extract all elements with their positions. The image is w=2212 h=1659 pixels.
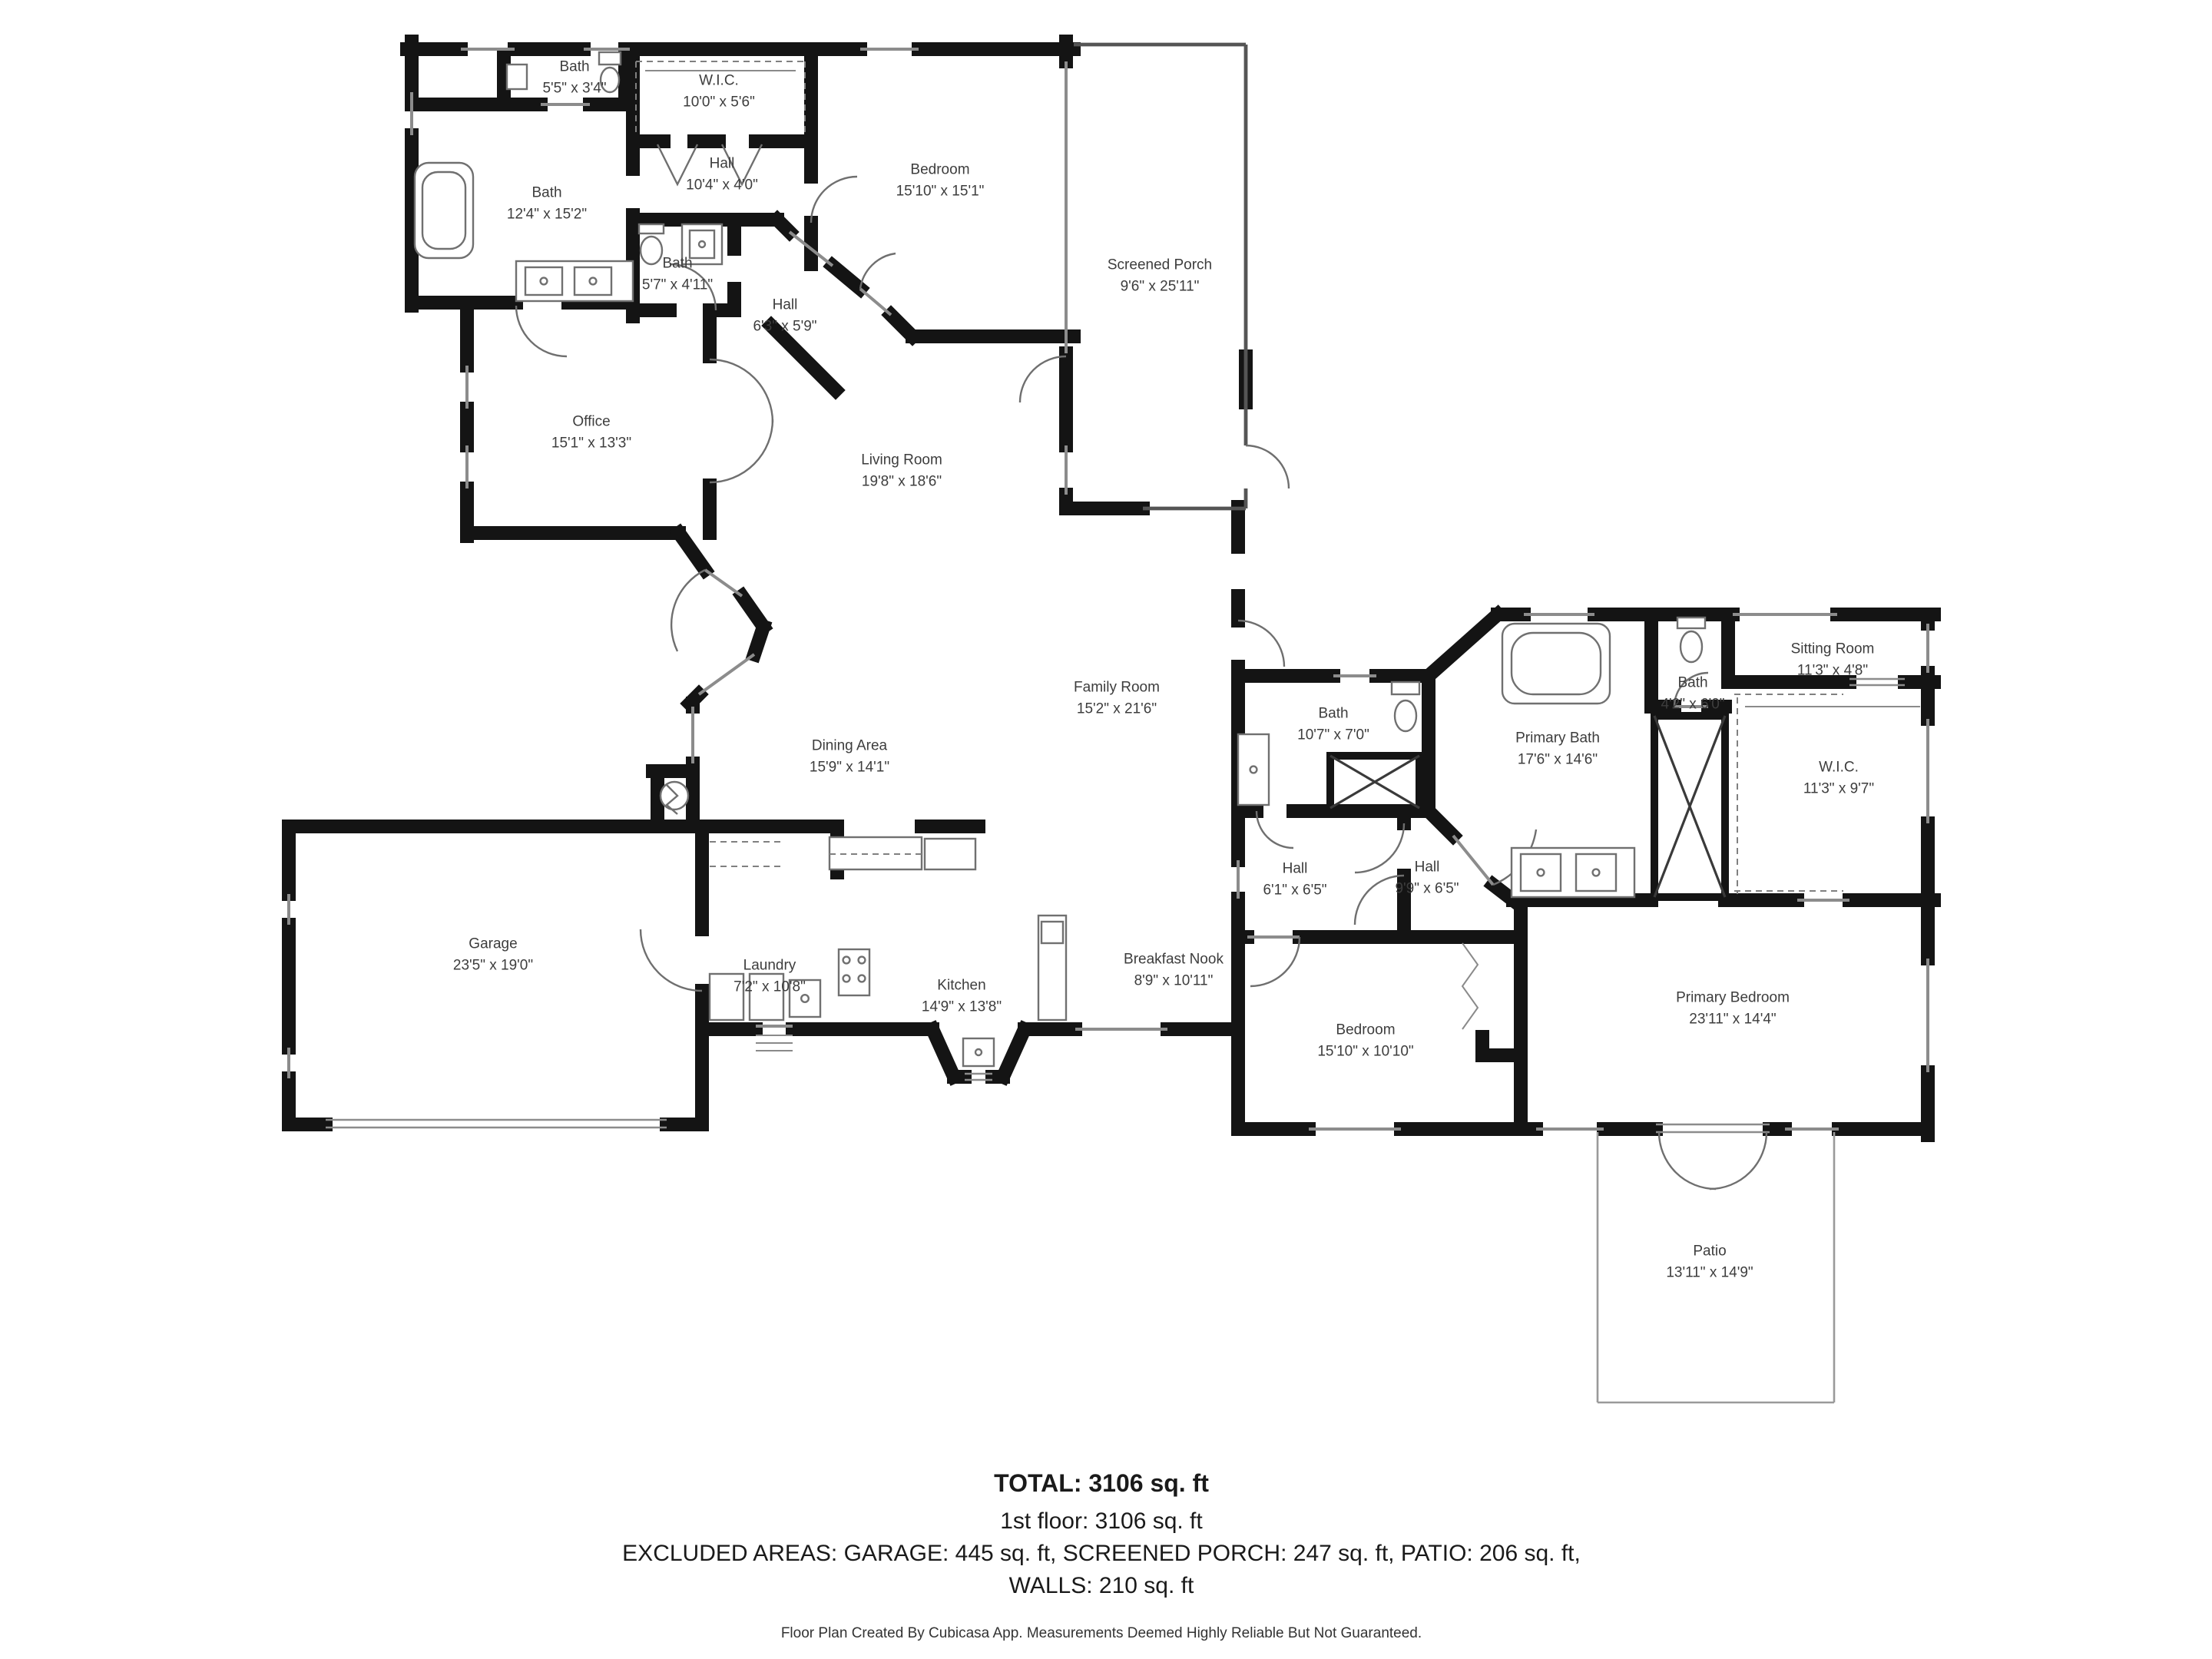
bathtub-inner-primary xyxy=(1512,633,1601,694)
toilet-bowl-bath42 xyxy=(1681,631,1702,662)
room-label-office: Office15'1" x 13'3" xyxy=(551,412,631,454)
laundry-steps xyxy=(756,1035,793,1051)
room-label-family-room: Family Room15'2" x 21'6" xyxy=(1074,677,1160,720)
room-name: Kitchen xyxy=(922,975,1002,997)
room-name: Laundry xyxy=(733,955,806,977)
room-label-bedroom-bottom: Bedroom15'10" x 10'10" xyxy=(1317,1020,1413,1062)
stove xyxy=(839,949,869,995)
laundry-counter-dashed xyxy=(710,842,780,866)
drain-right-bath-main xyxy=(590,278,597,285)
burner-4 xyxy=(859,975,866,982)
door-bedroom-bottom xyxy=(1250,937,1300,986)
room-name: Hall xyxy=(686,154,758,175)
room-name: Bath xyxy=(1297,704,1369,725)
room-dims: 23'11" x 14'4" xyxy=(1676,1009,1790,1031)
room-dims: 23'5" x 19'0" xyxy=(453,955,533,977)
door-garage-laundry xyxy=(641,929,702,991)
room-name: Primary Bath xyxy=(1515,728,1600,750)
room-dims: 5'7" x 4'11" xyxy=(642,275,713,296)
walls-area-text: WALLS: 210 sq. ft xyxy=(1009,1573,1194,1599)
room-label-sitting-room: Sitting Room11'3" x 4'8" xyxy=(1791,639,1875,681)
door-front-entry xyxy=(671,570,705,651)
bathtub-inner-bath-main xyxy=(422,172,465,249)
floor-plan-page: Bath5'5" x 3'4" W.I.C.10'0" x 5'6" Hall1… xyxy=(0,0,2212,1659)
room-name: W.I.C. xyxy=(1803,757,1874,779)
room-label-bath-57: Bath5'7" x 4'11" xyxy=(642,253,713,296)
oven xyxy=(1041,922,1063,943)
door-patio-right xyxy=(1710,1132,1767,1189)
room-name: Hall xyxy=(1263,859,1326,880)
excluded-areas-text: EXCLUDED AREAS: GARAGE: 445 sq. ft, SCRE… xyxy=(622,1541,1581,1567)
room-dims: 11'3" x 9'7" xyxy=(1803,779,1874,800)
room-label-kitchen: Kitchen14'9" x 13'8" xyxy=(922,975,1002,1018)
room-dims: 14'9" x 13'8" xyxy=(922,997,1002,1018)
room-label-dining-area: Dining Area15'9" x 14'1" xyxy=(810,736,889,778)
room-dims: 5'5" x 3'4" xyxy=(542,78,606,100)
room-name: Bedroom xyxy=(896,160,985,181)
room-name: Bedroom xyxy=(1317,1020,1413,1041)
room-name: Dining Area xyxy=(810,736,889,757)
room-dims: 12'4" x 15'2" xyxy=(507,204,587,226)
sink-bath-small xyxy=(507,65,527,89)
kitchen-sink-drain xyxy=(975,1049,982,1055)
room-label-bedroom-top: Bedroom15'10" x 15'1" xyxy=(896,160,985,202)
kitchen-top-counter xyxy=(925,839,975,869)
room-name: Primary Bedroom xyxy=(1676,988,1790,1009)
room-label-bath-42: Bath4'2" x 6'0" xyxy=(1661,673,1724,715)
room-name: Patio xyxy=(1666,1241,1753,1263)
room-dims: 10'4" x 4'0" xyxy=(686,175,758,197)
room-dims: 7'2" x 10'8" xyxy=(733,977,806,998)
room-dims: 10'0" x 5'6" xyxy=(683,92,755,114)
toilet-tank-bath57 xyxy=(639,224,664,233)
floor-plan-canvas xyxy=(0,0,2212,1659)
room-label-hall-99: Hall9'9" x 6'5" xyxy=(1395,857,1459,899)
toilet-tank-bath107 xyxy=(1392,682,1419,694)
door-patio-left xyxy=(1659,1132,1716,1189)
room-label-primary-bedroom: Primary Bedroom23'11" x 14'4" xyxy=(1676,988,1790,1030)
drain-right-primary xyxy=(1593,869,1600,876)
room-name: Screened Porch xyxy=(1108,255,1212,276)
room-label-wic-right: W.I.C.11'3" x 9'7" xyxy=(1803,757,1874,800)
room-name: Family Room xyxy=(1074,677,1160,699)
shower-x-bath107 xyxy=(1330,756,1419,808)
room-name: Living Room xyxy=(861,450,942,472)
toilet-bowl-bath107 xyxy=(1395,700,1416,731)
toilet-tank-bath42 xyxy=(1677,618,1705,628)
room-name: Bath xyxy=(1661,673,1724,694)
room-name: Office xyxy=(551,412,631,433)
room-dims: 9'6" x 25'11" xyxy=(1108,276,1212,298)
drain-left-primary xyxy=(1538,869,1545,876)
door-porch-exit xyxy=(1246,445,1289,488)
room-name: Hall xyxy=(1395,857,1459,879)
slider-lines xyxy=(326,679,1905,1132)
utility-meter xyxy=(661,782,688,810)
room-dims: 15'10" x 15'1" xyxy=(896,181,985,203)
room-label-living-room: Living Room19'8" x 18'6" xyxy=(861,450,942,492)
room-dims: 15'1" x 13'3" xyxy=(551,433,631,455)
room-label-patio: Patio13'11" x 14'9" xyxy=(1666,1241,1753,1283)
door-french-office-1 xyxy=(710,359,773,422)
disclaimer-text: Floor Plan Created By Cubicasa App. Meas… xyxy=(781,1625,1422,1642)
room-dims: 9'9" x 6'5" xyxy=(1395,879,1459,900)
room-label-hall-63: Hall6'3" x 5'9" xyxy=(753,295,816,337)
room-dims: 8'9" x 10'11" xyxy=(1124,971,1224,992)
room-name: Bath xyxy=(507,183,587,204)
closet-bifold-bedroom xyxy=(1462,943,1478,1029)
room-dims: 15'10" x 10'10" xyxy=(1317,1041,1413,1063)
room-dims: 6'3" x 5'9" xyxy=(753,316,816,338)
fixtures xyxy=(415,52,1705,1066)
total-area-text: TOTAL: 3106 sq. ft xyxy=(994,1472,1209,1499)
burner-3 xyxy=(843,975,850,982)
room-dims: 17'6" x 14'6" xyxy=(1515,750,1600,771)
room-label-hall-top: Hall10'4" x 4'0" xyxy=(686,154,758,196)
room-label-breakfast-nook: Breakfast Nook8'9" x 10'11" xyxy=(1124,949,1224,992)
room-dims: 10'7" x 7'0" xyxy=(1297,725,1369,747)
room-name: Garage xyxy=(453,934,533,955)
room-dims: 15'9" x 14'1" xyxy=(810,757,889,779)
room-label-screened-porch: Screened Porch9'6" x 25'11" xyxy=(1108,255,1212,297)
room-name: Bath xyxy=(542,57,606,78)
room-label-hall-61: Hall6'1" x 6'5" xyxy=(1263,859,1326,901)
burner-2 xyxy=(859,957,866,964)
room-label-laundry: Laundry7'2" x 10'8" xyxy=(733,955,806,998)
drain-left-bath-main xyxy=(541,278,548,285)
shower-x-primary xyxy=(1654,716,1725,897)
room-label-bath-107: Bath10'7" x 7'0" xyxy=(1297,704,1369,746)
room-label-bath-main: Bath12'4" x 15'2" xyxy=(507,183,587,225)
room-name: Sitting Room xyxy=(1791,639,1875,661)
room-dims: 6'1" x 6'5" xyxy=(1263,880,1326,902)
room-label-garage: Garage23'5" x 19'0" xyxy=(453,934,533,976)
room-label-primary-bath: Primary Bath17'6" x 14'6" xyxy=(1515,728,1600,770)
burner-1 xyxy=(843,957,850,964)
room-label-bath-small: Bath5'5" x 3'4" xyxy=(542,57,606,99)
room-dims: 4'2" x 6'0" xyxy=(1661,694,1724,716)
drain-bath57 xyxy=(699,241,705,247)
first-floor-text: 1st floor: 3106 sq. ft xyxy=(1000,1508,1203,1535)
room-dims: 13'11" x 14'9" xyxy=(1666,1263,1753,1284)
room-name: W.I.C. xyxy=(683,71,755,92)
room-dims: 19'8" x 18'6" xyxy=(861,472,942,493)
room-dims: 15'2" x 21'6" xyxy=(1074,699,1160,720)
room-name: Hall xyxy=(753,295,816,316)
room-name: Breakfast Nook xyxy=(1124,949,1224,971)
door-french-office-2 xyxy=(710,419,773,482)
door-bath-main xyxy=(516,306,567,356)
drain-bath107 xyxy=(1250,767,1257,773)
room-label-wic-left: W.I.C.10'0" x 5'6" xyxy=(683,71,755,113)
room-dims: 11'3" x 4'8" xyxy=(1791,661,1875,682)
door-hall63-bedroom xyxy=(860,253,896,289)
room-name: Bath xyxy=(642,253,713,275)
